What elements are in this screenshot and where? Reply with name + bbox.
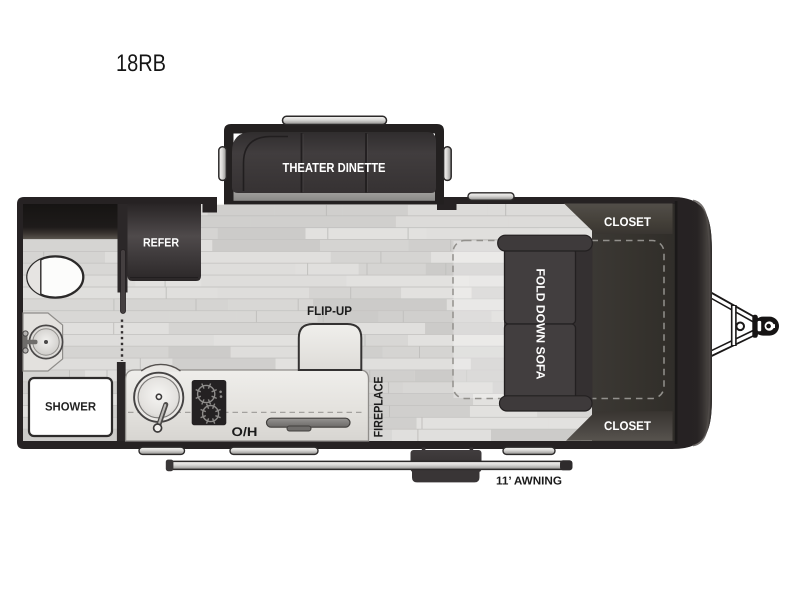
svg-text:18RB: 18RB [116, 50, 166, 77]
svg-text:SHOWER: SHOWER [45, 400, 96, 414]
svg-text:REFER: REFER [143, 236, 179, 250]
svg-text:THEATER DINETTE: THEATER DINETTE [283, 160, 386, 175]
svg-text:O/H: O/H [232, 425, 258, 439]
svg-text:FIREPLACE: FIREPLACE [372, 376, 386, 437]
svg-text:11’ AWNING: 11’ AWNING [496, 476, 562, 488]
svg-text:CLOSET: CLOSET [604, 215, 651, 229]
svg-text:FOLD DOWN SOFA: FOLD DOWN SOFA [534, 269, 548, 380]
svg-text:FLIP-UP: FLIP-UP [307, 304, 352, 318]
svg-text:CLOSET: CLOSET [604, 419, 651, 433]
